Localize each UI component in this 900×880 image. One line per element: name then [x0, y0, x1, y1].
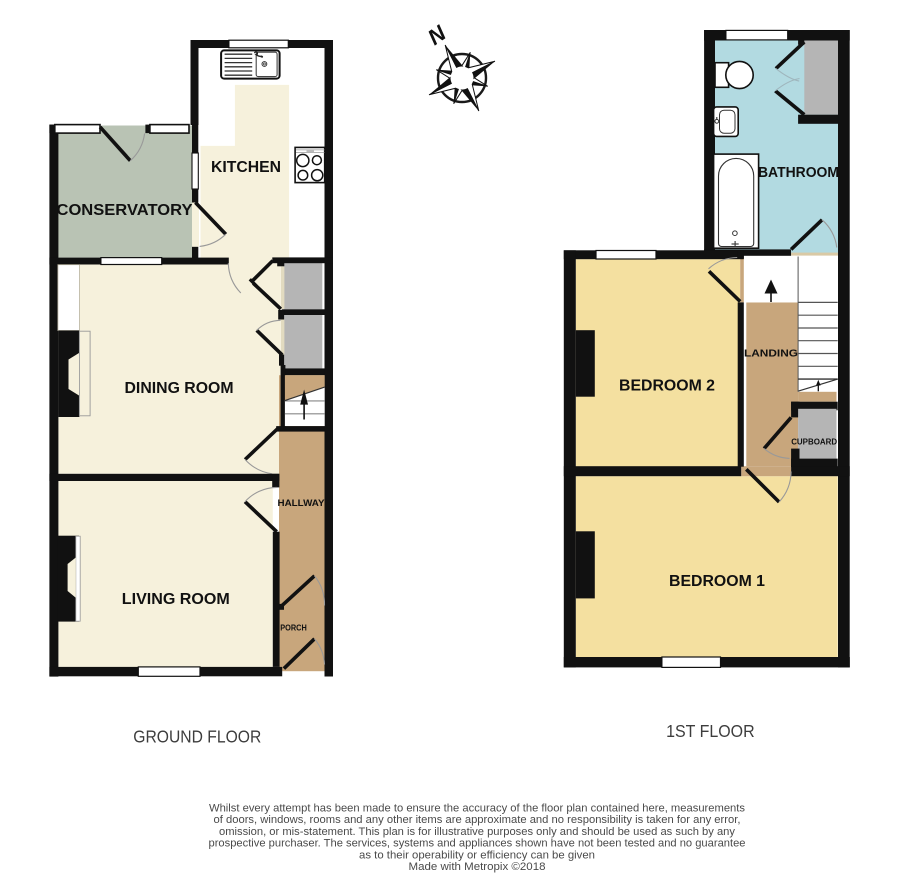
svg-text:Whilst every attempt has been: Whilst every attempt has been made to en… [209, 803, 746, 815]
svg-text:GROUND FLOOR: GROUND FLOOR [133, 727, 261, 747]
svg-text:CUPBOARD: CUPBOARD [791, 438, 837, 447]
svg-text:DINING ROOM: DINING ROOM [125, 380, 234, 397]
svg-text:BEDROOM 2: BEDROOM 2 [619, 377, 715, 394]
svg-text:as to their operability or eff: as to their operability or efficiency ca… [359, 849, 595, 861]
svg-text:BEDROOM 1: BEDROOM 1 [669, 573, 765, 590]
svg-text:PORCH: PORCH [280, 622, 307, 632]
svg-text:KITCHEN: KITCHEN [211, 159, 281, 176]
svg-text:of doors, windows, rooms and a: of doors, windows, rooms and any other i… [214, 814, 741, 826]
svg-text:CONSERVATORY: CONSERVATORY [57, 202, 194, 219]
svg-text:BATHROOM: BATHROOM [758, 165, 839, 181]
svg-text:prospective purchaser. The ser: prospective purchaser. The services, sys… [209, 838, 746, 850]
svg-text:Made with Metropix ©2018: Made with Metropix ©2018 [409, 861, 546, 873]
svg-text:omission, or mis-statement. Th: omission, or mis-statement. This plan is… [219, 826, 735, 838]
svg-text:LANDING: LANDING [744, 349, 798, 360]
svg-text:LIVING ROOM: LIVING ROOM [122, 591, 230, 608]
svg-text:1ST FLOOR: 1ST FLOOR [666, 721, 755, 741]
svg-text:HALLWAY: HALLWAY [278, 498, 325, 508]
